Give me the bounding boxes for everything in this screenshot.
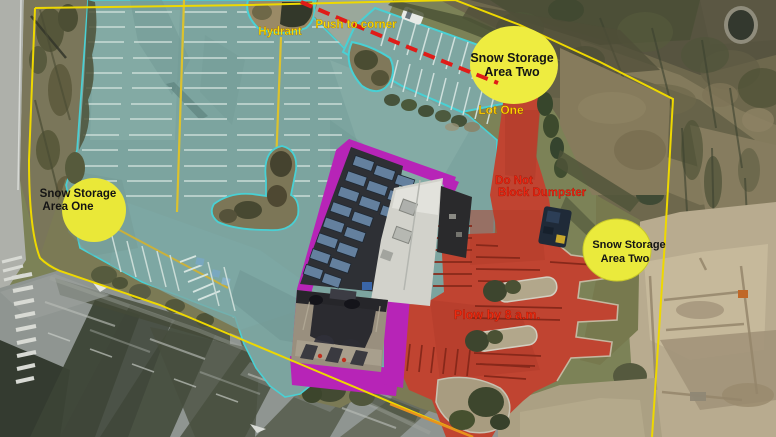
svg-text:Area One: Area One (42, 201, 93, 213)
svg-text:Do Not: Do Not (495, 175, 533, 187)
svg-text:Plow by 8 a.m.: Plow by 8 a.m. (454, 308, 540, 322)
svg-text:Block Dumpster: Block Dumpster (498, 187, 587, 199)
svg-text:Push to corner: Push to corner (315, 19, 397, 31)
svg-text:Area Two: Area Two (601, 253, 650, 265)
svg-text:Lot One: Lot One (478, 103, 524, 117)
svg-text:Hydrant: Hydrant (258, 26, 302, 38)
svg-text:Snow Storage: Snow Storage (40, 188, 117, 200)
svg-text:Snow Storage: Snow Storage (592, 239, 665, 251)
svg-text:Area Two: Area Two (484, 65, 540, 79)
svg-text:Snow Storage: Snow Storage (470, 51, 553, 65)
